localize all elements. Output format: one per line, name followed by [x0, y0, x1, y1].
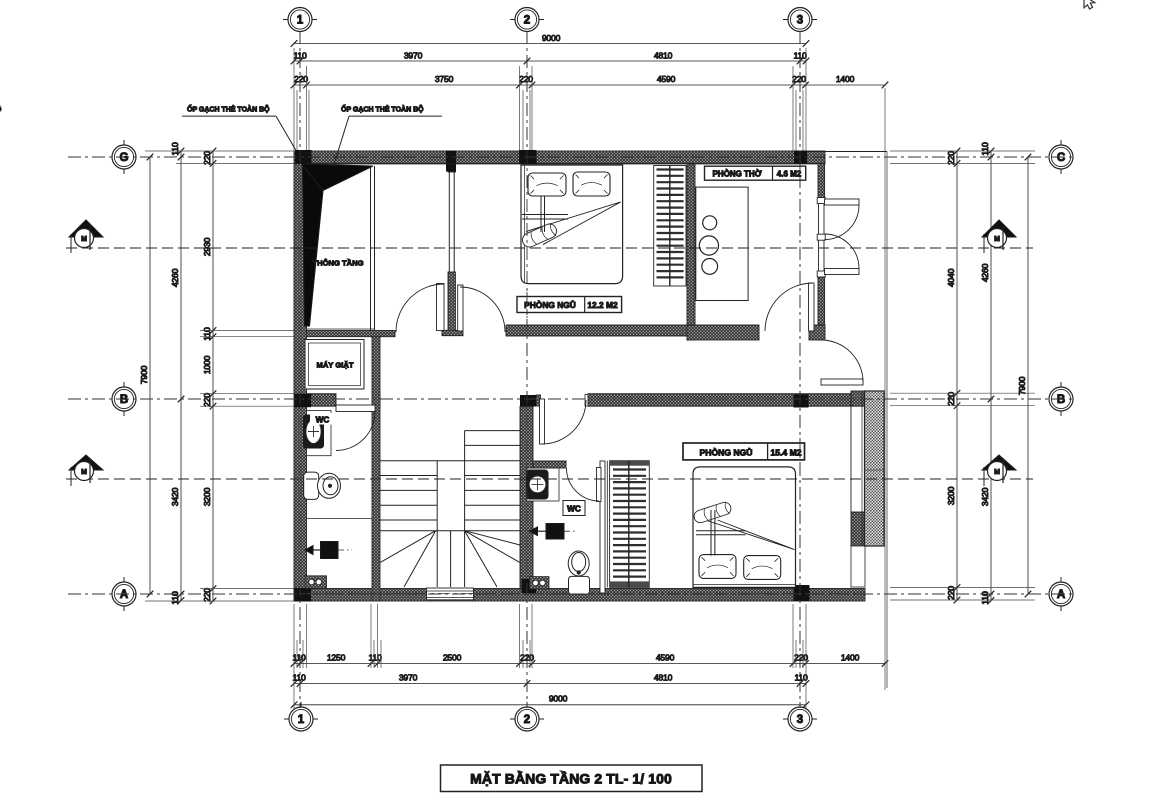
svg-text:110: 110	[170, 591, 180, 605]
svg-text:3: 3	[797, 714, 803, 726]
svg-text:220: 220	[202, 393, 212, 407]
svg-text:3: 3	[797, 15, 803, 27]
svg-text:PHÒNG THỜ: PHÒNG THỜ	[712, 170, 761, 179]
svg-text:WC: WC	[316, 416, 330, 425]
svg-text:WC: WC	[567, 505, 581, 514]
svg-text:2: 2	[524, 714, 530, 726]
svg-text:THÔNG TẦNG: THÔNG TẦNG	[312, 258, 363, 268]
svg-text:PHÒNG NGỦ: PHÒNG NGỦ	[700, 446, 753, 457]
svg-text:3970: 3970	[404, 51, 423, 61]
svg-text:110: 110	[980, 142, 990, 156]
svg-text:110: 110	[292, 673, 306, 683]
svg-text:9000: 9000	[542, 33, 561, 43]
svg-text:4590: 4590	[656, 653, 675, 663]
svg-text:1400: 1400	[841, 653, 860, 663]
svg-text:4260: 4260	[980, 263, 990, 282]
svg-text:220: 220	[202, 151, 212, 165]
svg-text:G: G	[120, 152, 129, 164]
svg-text:A: A	[1057, 589, 1065, 601]
svg-text:3970: 3970	[399, 673, 418, 683]
svg-text:4810: 4810	[654, 673, 673, 683]
svg-text:PHÒNG NGỦ: PHÒNG NGỦ	[524, 299, 576, 310]
svg-text:7900: 7900	[139, 365, 149, 384]
svg-text:M: M	[994, 469, 1000, 476]
svg-text:3420: 3420	[170, 487, 180, 506]
svg-text:220: 220	[202, 588, 212, 602]
svg-text:4810: 4810	[654, 51, 673, 61]
svg-text:110: 110	[170, 142, 180, 156]
svg-text:M: M	[994, 236, 1000, 243]
svg-text:3200: 3200	[946, 486, 956, 505]
svg-text:3200: 3200	[202, 487, 212, 506]
svg-text:7900: 7900	[1017, 376, 1027, 395]
svg-text:4590: 4590	[657, 74, 676, 84]
svg-text:B: B	[120, 394, 128, 406]
svg-text:4260: 4260	[170, 268, 180, 287]
svg-text:MẶT BẰNG TẦNG 2 TL- 1/ 100: MẶT BẰNG TẦNG 2 TL- 1/ 100	[470, 770, 672, 787]
svg-text:B: B	[1057, 394, 1065, 406]
svg-text:9000: 9000	[549, 694, 568, 704]
svg-text:M: M	[81, 236, 87, 243]
svg-text:1: 1	[298, 714, 305, 726]
svg-text:220: 220	[946, 151, 956, 165]
svg-text:2500: 2500	[443, 653, 462, 663]
svg-text:12.2 M2: 12.2 M2	[587, 300, 618, 310]
svg-text:1000: 1000	[202, 355, 212, 374]
svg-text:2: 2	[524, 15, 530, 27]
svg-text:4.6 M2: 4.6 M2	[777, 170, 802, 179]
svg-text:110: 110	[202, 327, 212, 341]
svg-text:2930: 2930	[202, 237, 212, 256]
svg-text:15.4 M2: 15.4 M2	[770, 447, 801, 457]
svg-text:3420: 3420	[980, 487, 990, 506]
svg-text:3750: 3750	[435, 74, 454, 84]
svg-text:C: C	[1057, 152, 1065, 164]
svg-text:MÁY GIẶT: MÁY GIẶT	[317, 361, 354, 370]
svg-text:M: M	[81, 469, 87, 476]
svg-text:110: 110	[292, 653, 306, 663]
svg-text:110: 110	[368, 653, 382, 663]
svg-text:110: 110	[980, 591, 990, 605]
svg-text:1400: 1400	[836, 74, 855, 84]
svg-text:1: 1	[297, 15, 304, 27]
svg-text:4040: 4040	[946, 268, 956, 287]
svg-text:1250: 1250	[327, 653, 346, 663]
svg-text:220: 220	[792, 74, 806, 84]
svg-text:220: 220	[519, 74, 533, 84]
svg-text:A: A	[120, 589, 128, 601]
